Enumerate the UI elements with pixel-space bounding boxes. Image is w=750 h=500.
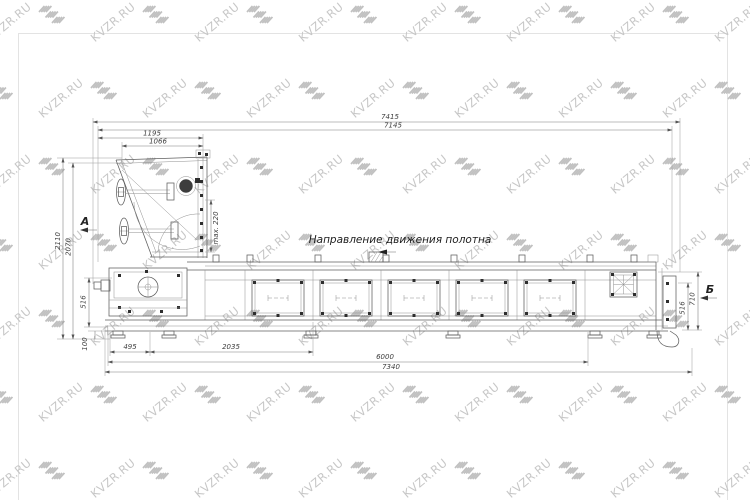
view-label-b: Б (700, 283, 717, 301)
view-label-a: А (80, 215, 97, 233)
dim-drive-offset: 495 (123, 343, 137, 351)
web-direction-annotation: Направление движения полотна (309, 234, 492, 255)
hopper-roller (180, 180, 193, 193)
dim-hopper-width-outer: 1195 (143, 130, 161, 138)
access-panel-5 (524, 279, 576, 317)
drive-unit (94, 268, 187, 316)
drawing-page: KVZR.RU KVZR.RU KVZR.RU KVZR.RU KVZR.RU … (0, 0, 750, 500)
hopper (116, 150, 210, 258)
dim-first-section: 2035 (222, 343, 240, 351)
conveyor-table (105, 252, 668, 331)
dim-left-small-height: 516 (80, 295, 88, 309)
view-label-b-text: Б (706, 283, 714, 296)
view-arrow-a (80, 228, 88, 233)
view-label-a-text: А (80, 215, 90, 228)
access-panel-1 (252, 279, 304, 317)
dim-conveyor-length: 6000 (376, 353, 394, 361)
dim-hopper-width-inner: 1066 (149, 138, 167, 146)
access-panel-4 (456, 279, 508, 317)
dim-right-small-height: 516 (679, 301, 687, 315)
web-direction-arrow-icon (378, 250, 387, 255)
machine-feet (111, 331, 661, 338)
dim-max-gap: max. 220 (212, 211, 220, 245)
dim-base-length: 7340 (382, 363, 400, 371)
dim-height-body: 2070 (65, 238, 73, 256)
drive-shaft-end (94, 282, 101, 289)
access-panels (252, 279, 576, 317)
hopper-handwheel-lower (120, 218, 179, 244)
view-arrow-b (700, 296, 708, 301)
machine-side-view-drawing: 7415 7145 1195 1066 2110 2070 516 100 ma… (0, 0, 750, 500)
discharge-spout (657, 331, 679, 347)
dim-height-overall: 2110 (54, 232, 62, 250)
web-direction-label: Направление движения полотна (309, 234, 492, 246)
table-chimney (369, 252, 383, 262)
access-panel-3 (388, 279, 440, 317)
dim-total-length: 7415 (381, 113, 399, 121)
access-panel-2 (320, 279, 372, 317)
dim-right-height: 710 (689, 292, 697, 306)
dim-foot-height: 100 (81, 337, 89, 351)
dim-upper-length: 7145 (384, 122, 402, 130)
fan-box (610, 272, 637, 297)
discharge-end (648, 255, 679, 347)
